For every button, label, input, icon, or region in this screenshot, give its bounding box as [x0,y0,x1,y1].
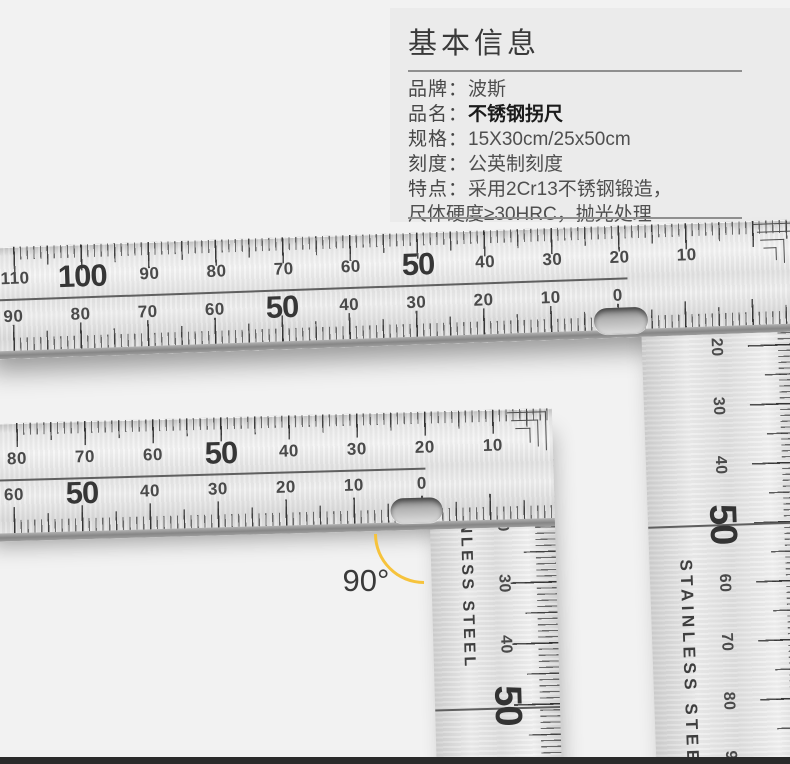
scale-number: 90 [139,264,160,285]
scale-number: 40 [279,441,299,462]
small-square-ruler: 1020304050 STAINLESS STEEL 8070605040302… [0,408,574,764]
spec-row: 规格：15X30cm/25x50cm [408,127,790,152]
spec-label: 刻度： [408,154,468,175]
spec-value: 采用2Cr13不锈钢锻造， [468,179,672,200]
spec-value: 不锈钢拐尺 [468,104,563,125]
product-info-image: 基本信息 品牌：波斯品名：不锈钢拐尺规格：15X30cm/25x50cm刻度：公… [0,0,790,764]
scale-number: 70 [273,259,294,280]
title-divider [408,70,742,72]
corner-engraving-icon [740,222,790,284]
scale-number: 80 [719,691,738,710]
scale-number: 40 [475,252,496,273]
spec-label: 品牌： [408,79,468,100]
scale-number: 50 [700,503,744,545]
bottom-divider [408,217,742,219]
scale-number: 20 [609,247,630,268]
scale-number: 40 [496,635,515,654]
spec-label: 品名： [408,104,468,125]
info-panel: 基本信息 品牌：波斯品名：不锈钢拐尺规格：15X30cm/25x50cm刻度：公… [390,8,790,222]
spec-row: 特点：采用2Cr13不锈钢锻造， [408,177,790,202]
spec-row: 刻度：公英制刻度 [408,152,790,177]
spec-list: 品牌：波斯品名：不锈钢拐尺规格：15X30cm/25x50cm刻度：公英制刻度特… [408,77,790,227]
scale-number: 20 [415,437,435,458]
bottom-border-strip [0,757,790,764]
scale-number: 40 [711,456,730,475]
scale-number: 10 [676,245,697,266]
scale-number: 30 [494,574,513,593]
scale-number: 80 [7,449,27,470]
hanging-slot [593,307,648,335]
scale-number: 50 [204,435,237,472]
spec-value: 波斯 [468,79,506,100]
scale-number: 60 [143,445,163,466]
scale-number: 30 [542,250,563,271]
scale-number: 70 [75,447,95,468]
spec-label: 特点： [408,179,468,200]
spec-label: 规格： [408,129,468,150]
scale-number: 60 [715,573,734,592]
panel-title: 基本信息 [408,20,790,62]
corner-engraving-icon [486,411,548,473]
scale-number: 30 [347,439,367,460]
scale-number: 70 [717,632,736,651]
tick-marks [0,219,790,274]
scale-number: 10 [344,475,364,496]
spec-value: 公英制刻度 [468,154,563,175]
scale-number: 30 [208,479,228,500]
spec-row: 品牌：波斯 [408,77,790,102]
scale-number: 50 [401,246,435,283]
scale-number: 40 [140,481,160,502]
scale-number: 100 [57,258,107,296]
scale-number: 50 [485,685,529,726]
scale-number: 20 [276,477,296,498]
spec-value: 尺体硬度≥30HRC，抛光处理 [408,204,652,225]
spec-row: 品名：不锈钢拐尺 [408,102,790,127]
scale-number: 60 [4,485,24,506]
angle-label: 90° [336,563,396,599]
scale-number: 80 [206,261,227,282]
spec-value: 15X30cm/25x50cm [468,129,631,150]
scale-number: 110 [0,268,30,289]
scale-number: 20 [707,338,726,357]
scale-number: 30 [709,397,728,416]
scale-number: 60 [341,257,362,278]
